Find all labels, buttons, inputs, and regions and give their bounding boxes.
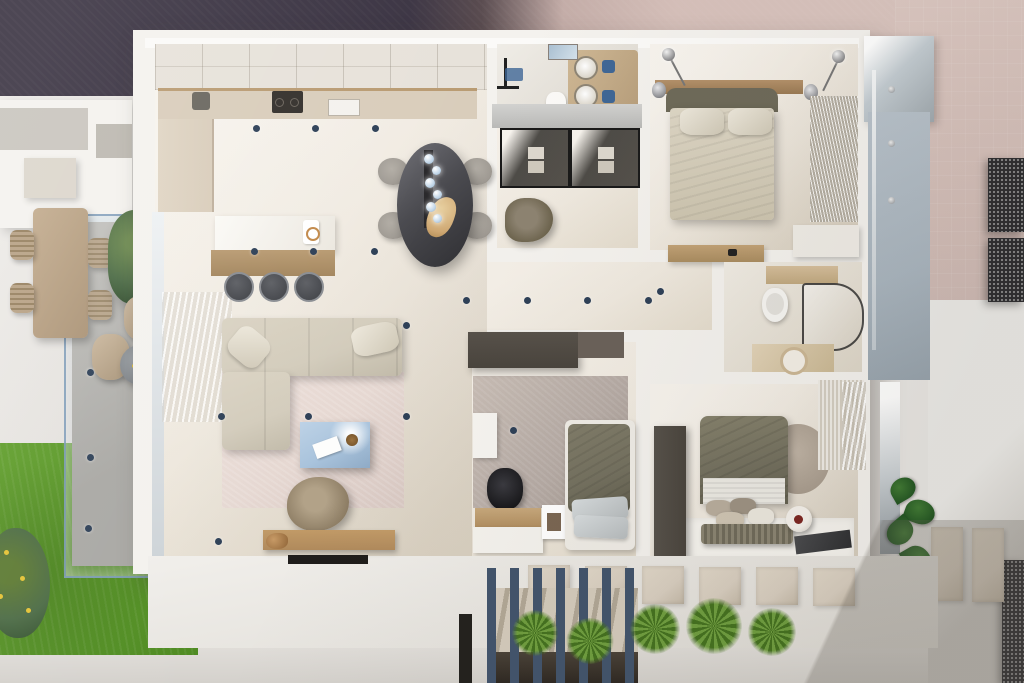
bed-pillow	[573, 515, 628, 540]
outdoor-chair	[88, 290, 112, 320]
ceiling-spotlight	[215, 538, 222, 545]
neighbor-roof-slab	[0, 108, 88, 150]
kitchen-ceiling-grid	[155, 44, 487, 90]
ceiling-spotlight	[403, 322, 410, 329]
bedroom3-curtain	[842, 382, 866, 470]
bedroom2-wardrobe	[468, 332, 578, 368]
ceiling-spotlight	[403, 413, 410, 420]
white-cabinet	[473, 527, 543, 553]
outdoor-chair	[10, 283, 34, 313]
hanging-clothes-wardrobe	[810, 96, 858, 222]
sofa-chaise	[222, 372, 290, 450]
cooktop	[272, 91, 303, 113]
desk	[475, 508, 541, 528]
pendant-lamp	[662, 48, 675, 61]
outdoor-dining-table	[33, 208, 88, 338]
bedroom3-wardrobe	[654, 426, 686, 558]
agave-plant	[686, 598, 742, 654]
glass-globe-light	[426, 202, 436, 212]
bedroom2-wardrobe-side	[578, 332, 624, 358]
island-tray	[303, 220, 319, 244]
glass-bolt	[888, 197, 895, 204]
agave-plant	[512, 610, 558, 656]
bar-stool	[224, 272, 254, 302]
ceiling-spotlight	[85, 525, 92, 532]
balcony-floor	[868, 112, 930, 380]
decor-sphere	[786, 506, 812, 532]
outdoor-chair	[10, 230, 34, 260]
perforated-screen	[988, 158, 1024, 232]
photo-frame	[542, 505, 566, 539]
curved-glass-shower	[802, 283, 864, 351]
blue-towel	[602, 60, 615, 73]
stair-handrail	[459, 614, 472, 683]
glass-balustrade	[872, 70, 876, 350]
glass-globe-light	[433, 214, 442, 223]
stone-wall-tile	[972, 528, 1004, 602]
stone-vanity	[752, 344, 834, 372]
ceiling-spotlight	[251, 248, 258, 255]
neighbor-roof-volume	[24, 158, 76, 198]
ceiling-spotlight	[372, 125, 379, 132]
perforated-screen	[1002, 560, 1024, 683]
perforated-screen	[988, 238, 1024, 302]
wall-shelf	[473, 413, 497, 458]
ceiling-spotlight	[645, 297, 652, 304]
glass-bolt	[888, 140, 895, 147]
glass-bolt	[888, 86, 895, 93]
small-plant	[346, 434, 358, 446]
ceiling-spotlight	[87, 454, 94, 461]
kitchen-sink	[192, 92, 210, 110]
neighbor-roof-slab	[96, 124, 132, 158]
ceiling-spotlight	[253, 125, 260, 132]
ceiling-spotlight	[584, 297, 591, 304]
dog	[266, 533, 288, 549]
ceiling-spotlight	[312, 125, 319, 132]
stone-slab	[813, 568, 855, 606]
ceiling-spotlight	[371, 248, 378, 255]
kitchen-vent	[328, 99, 360, 116]
skylight	[548, 44, 578, 60]
office-chair	[487, 468, 523, 510]
agave-plant	[748, 608, 796, 656]
pendant-shade	[652, 82, 666, 98]
hall-console	[668, 245, 764, 262]
glass-globe-light	[425, 178, 435, 188]
glass-wardrobe-door	[500, 128, 570, 188]
stone-slab	[756, 567, 798, 605]
closet-top-cabinet	[492, 104, 642, 128]
glass-globe-light	[424, 154, 434, 164]
white-dresser	[793, 225, 859, 257]
glass-globe-light	[432, 166, 441, 175]
coffee-table	[300, 422, 370, 468]
blue-shower-mat	[505, 68, 523, 81]
agave-plant	[566, 618, 614, 664]
ceiling-spotlight	[87, 369, 94, 376]
tv	[288, 555, 368, 564]
ceiling-spotlight	[510, 427, 517, 434]
blue-slat-screen	[487, 568, 639, 683]
ceiling-spotlight	[463, 297, 470, 304]
agave-plant	[630, 604, 680, 654]
bed-bench	[701, 524, 793, 544]
bed-pillow	[680, 108, 724, 135]
bathroom2-shelf	[766, 266, 838, 284]
wall-hung-toilet	[762, 288, 788, 322]
ceiling-spotlight	[657, 288, 664, 295]
hallway-floor	[487, 262, 712, 330]
ceiling-spotlight	[310, 248, 317, 255]
floor-plan-render	[0, 0, 1024, 683]
ceiling-spotlight	[218, 413, 225, 420]
towel-bar	[497, 86, 519, 89]
bed-pillow	[748, 508, 774, 525]
glass-wardrobe-door	[570, 128, 640, 188]
stone-slab	[642, 566, 684, 604]
magazine	[312, 436, 342, 459]
glass-globe-light	[433, 190, 442, 199]
bed-pillow	[728, 108, 772, 135]
bar-stool	[259, 272, 289, 302]
pendant-lamp	[832, 50, 845, 63]
ceiling-spotlight	[305, 413, 312, 420]
ceiling-spotlight	[524, 297, 531, 304]
blue-towel	[602, 90, 615, 103]
bar-stool	[294, 272, 324, 302]
